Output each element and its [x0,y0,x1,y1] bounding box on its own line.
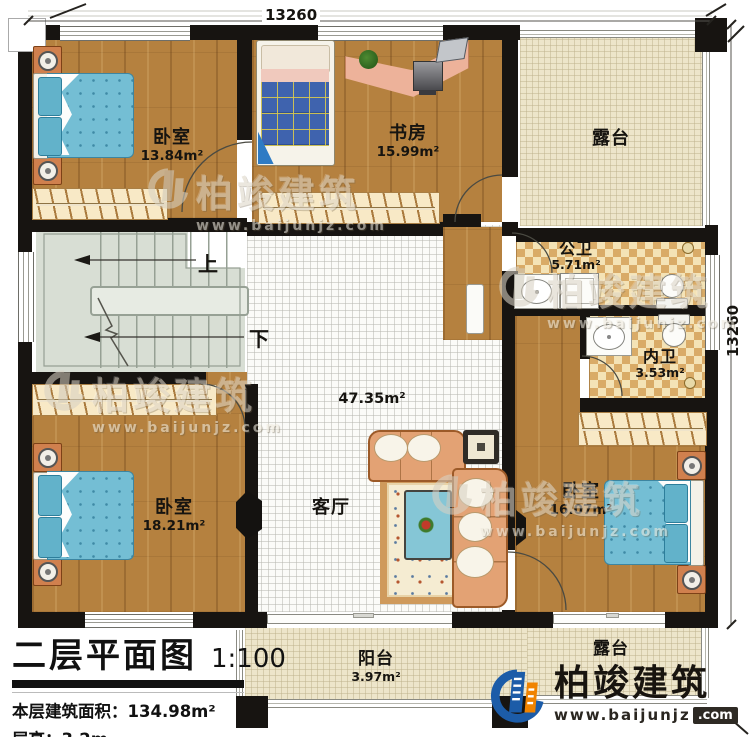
dimension-right: 13260 [724,298,742,364]
break-mark [728,26,744,42]
plan-title: 二层平面图 [12,628,197,677]
room-label-bedroom-top-left: 卧室 13.84m² [141,128,204,164]
break-mark [706,4,726,16]
title-block: 二层平面图 1:100 本层建筑面积：134.98m² 层高：3.2m [12,628,286,737]
door-arc [512,233,552,273]
stair-up-label: 上 [198,248,218,277]
room-label-terrace-top: 露台 [592,129,630,150]
stair-up-arrow [74,255,90,265]
living-area-label: 47.35m² [338,391,405,408]
door-arc [201,384,245,428]
plan-scale: 1:100 [211,644,286,674]
title-rule-thin [12,692,244,693]
floor-area-text: 本层建筑面积：134.98m² [12,698,286,722]
company-logo-icon [488,666,546,730]
room-label-terrace-bottom: 露台 [593,640,629,660]
company-website: www.baijunjz [554,706,691,724]
stair-down-label: 下 [249,323,269,352]
floor-height-text: 层高：3.2m [12,726,286,737]
room-label-balcony: 阳台 3.97m² [351,650,400,684]
stair-break-line [98,298,128,366]
company-logo[interactable]: 柏竣建筑 www.baijunjz .com [488,666,738,730]
door-arc [455,175,502,222]
floor-plan-canvas: 卧室 13.84m² 书房 15.99m² 露台 公卫 5.71m² 内卫 3.… [0,0,750,737]
room-label-study: 书房 15.99m² [377,124,440,160]
door-arc [582,356,622,396]
room-label-public-bath: 公卫 5.71m² [551,240,600,273]
door-arc [508,552,566,610]
stair-down-arrow [84,332,100,342]
room-label-bedroom-bottom-right: 卧室 16.07m² [550,482,613,518]
room-label-living: 客厅 [312,498,350,519]
room-label-inner-bath: 内卫 3.53m² [635,348,684,381]
company-website-tld: .com [693,707,738,724]
company-name: 柏竣建筑 [554,666,738,702]
dimension-top: 13260 [262,6,320,24]
room-label-bedroom-bottom-left: 卧室 18.21m² [143,498,206,534]
title-rule-thick [12,680,244,688]
